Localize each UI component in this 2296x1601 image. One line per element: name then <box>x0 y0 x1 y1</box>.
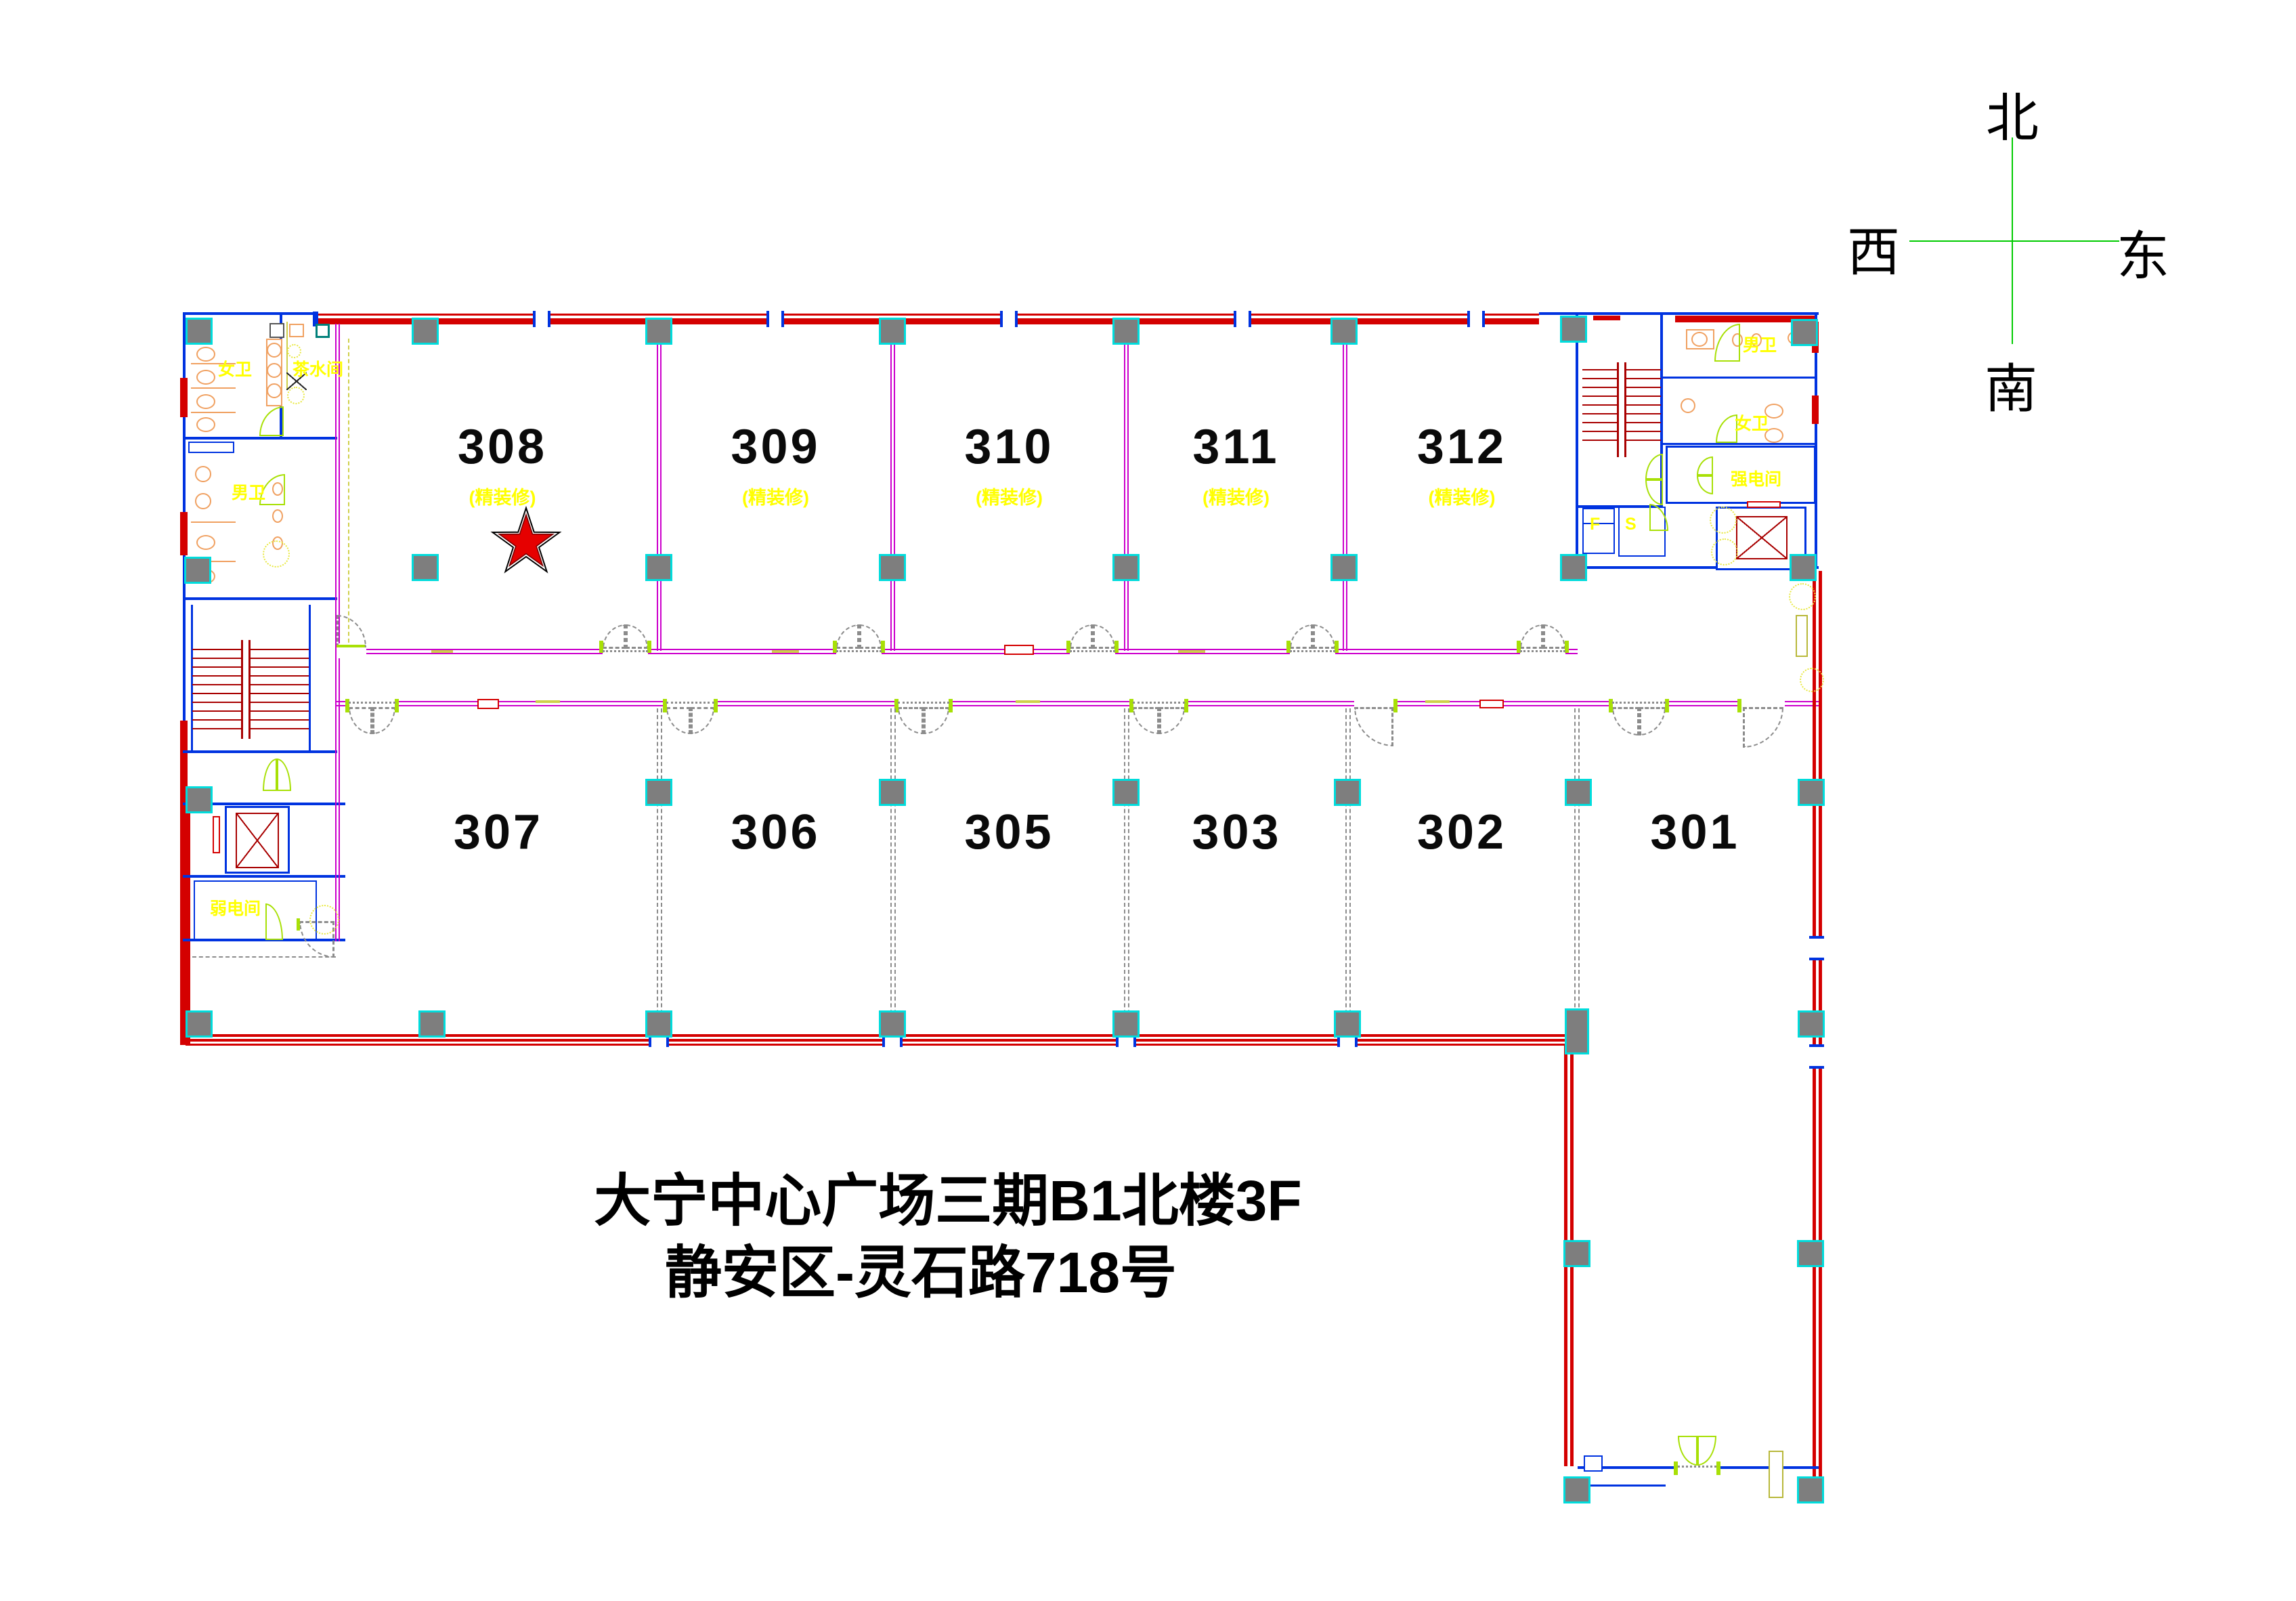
wall-segment <box>318 314 1539 316</box>
window-left-wall <box>180 512 188 555</box>
toilet-icon <box>196 535 215 550</box>
stall-divider <box>191 412 236 413</box>
stall-divider <box>191 387 236 389</box>
room-number: 306 <box>661 805 890 860</box>
compass-north: 北 <box>1986 76 2039 152</box>
sink-icon <box>1681 398 1695 413</box>
column <box>1330 554 1358 581</box>
room-308[interactable]: 308 (精装修) <box>348 324 657 651</box>
wall-segment <box>1346 324 1347 651</box>
room-number: 305 <box>894 805 1124 860</box>
door-jamb <box>297 918 300 931</box>
column <box>1334 1010 1361 1038</box>
column <box>1791 319 1818 346</box>
wall-segment <box>1539 312 1819 315</box>
plant-icon <box>263 540 290 568</box>
shaft-detail <box>1747 501 1781 508</box>
stall-divider <box>191 521 236 523</box>
column <box>418 1010 446 1038</box>
column <box>186 1010 213 1038</box>
wall-segment <box>1578 1485 1666 1487</box>
wall-segment <box>183 437 337 440</box>
dispenser-icon <box>269 323 284 338</box>
column <box>412 554 439 581</box>
wall-segment <box>183 875 345 878</box>
column <box>1565 779 1592 806</box>
shaft-detail <box>213 816 220 853</box>
room-312[interactable]: 312 (精装修) <box>1348 324 1576 651</box>
sink-icon <box>267 363 282 378</box>
stairs <box>192 649 309 730</box>
wall-segment <box>1576 312 1578 569</box>
partition-dashed <box>1345 708 1347 1034</box>
door-arc <box>1714 324 1740 362</box>
column <box>186 318 213 345</box>
entry-detail <box>1584 1455 1603 1472</box>
wall-segment <box>180 809 190 1045</box>
room-note: (精装修) <box>1128 483 1344 509</box>
label-f: F <box>1590 515 1600 534</box>
room-number: 312 <box>1348 419 1576 475</box>
stair-rail <box>1617 362 1626 457</box>
toilet-icon <box>196 417 215 432</box>
wall-segment <box>183 750 337 753</box>
column <box>1790 554 1817 581</box>
wall-segment <box>890 324 892 651</box>
entrance-door-arc[interactable] <box>1697 1436 1716 1466</box>
shaft-detail <box>1769 1451 1783 1498</box>
wall-segment <box>183 597 337 600</box>
room-301[interactable]: 301 <box>1578 706 1812 1034</box>
counter <box>289 324 304 337</box>
sink-icon <box>267 343 282 358</box>
wall-segment <box>336 653 1578 654</box>
window-break <box>1809 936 1824 960</box>
room-number: 310 <box>894 419 1124 475</box>
compass-east: 东 <box>2117 214 2169 290</box>
plant-icon <box>309 905 339 935</box>
wall-segment <box>1663 377 1817 379</box>
room-310[interactable]: 310 (精装修) <box>894 324 1124 651</box>
partition-dashed <box>1124 708 1125 1034</box>
room-number: 301 <box>1578 805 1812 860</box>
column <box>1798 779 1825 806</box>
sink-icon <box>316 324 330 338</box>
room-302[interactable]: 302 <box>1349 706 1574 1034</box>
room-number: 303 <box>1128 805 1345 860</box>
wall-segment <box>309 605 311 753</box>
partition-dashed <box>657 708 658 1034</box>
room-309[interactable]: 309 (精装修) <box>661 324 890 651</box>
room-label-low-voltage: 弱电间 <box>210 895 261 920</box>
column <box>184 557 211 584</box>
room-note: (精装修) <box>894 483 1124 509</box>
toilet-icon <box>196 394 215 409</box>
column <box>645 1010 672 1038</box>
column <box>1563 1476 1590 1503</box>
sink-icon <box>1691 332 1708 347</box>
door-threshold <box>1678 1466 1716 1468</box>
wall-mark <box>1016 700 1040 703</box>
toilet-icon <box>196 370 215 385</box>
room-label-male-wc: 男卫 <box>232 479 265 504</box>
room-number: 302 <box>1349 805 1574 860</box>
door-threshold <box>1133 702 1185 704</box>
room-label-female-wc-right: 女卫 <box>1735 410 1769 435</box>
door-arc <box>259 406 284 436</box>
column <box>1797 1476 1824 1503</box>
room-label-male-wc-right: 男卫 <box>1743 332 1777 356</box>
column <box>645 554 672 581</box>
plant-icon <box>1710 507 1737 534</box>
plant-icon <box>1789 583 1816 610</box>
door-arc <box>263 759 277 791</box>
room-label-tea-room: 茶水间 <box>293 356 343 381</box>
column <box>1112 318 1140 345</box>
plan-title-line1: 大宁中心广场三期B1北楼3F <box>271 1155 1625 1237</box>
wall-mark <box>1425 700 1450 703</box>
room-number: 308 <box>348 419 657 475</box>
column <box>1565 1008 1589 1054</box>
column <box>879 779 906 806</box>
plant-icon <box>287 387 305 404</box>
room-number: 309 <box>661 419 890 475</box>
room-307[interactable]: 307 <box>340 706 657 1034</box>
room-note: (精装修) <box>661 483 890 509</box>
column <box>1112 554 1140 581</box>
wall-mark <box>536 700 560 703</box>
partition-dashed <box>890 708 892 1034</box>
door-jamb <box>1716 1461 1720 1475</box>
column <box>645 779 672 806</box>
label-s: S <box>1625 515 1637 534</box>
column <box>1560 554 1587 581</box>
door-arc <box>277 759 291 791</box>
star-marker[interactable] <box>489 506 563 578</box>
column <box>879 318 906 345</box>
floor-plan: 弱电间 女卫 茶水间 男卫 <box>0 0 2296 1601</box>
door-threshold <box>666 702 714 704</box>
wall-segment <box>1593 316 1620 320</box>
window-break <box>1809 1044 1824 1069</box>
plant-icon <box>1800 668 1824 692</box>
compass-west: 西 <box>1847 210 1900 286</box>
room-number: 307 <box>340 805 657 860</box>
room-number: 311 <box>1128 419 1344 475</box>
column <box>1334 779 1361 806</box>
column <box>1797 1240 1824 1267</box>
wall-segment <box>1663 443 1817 445</box>
room-303[interactable]: 303 <box>1128 706 1345 1034</box>
door-threshold <box>349 702 395 704</box>
column <box>1798 1010 1825 1038</box>
room-306[interactable]: 306 <box>661 706 890 1034</box>
column <box>879 1010 906 1038</box>
elevator-icon <box>236 813 279 868</box>
sink-icon <box>267 383 282 398</box>
wall-segment <box>192 956 336 958</box>
sink-icon <box>195 466 211 482</box>
room-311[interactable]: 311 (精装修) <box>1128 324 1344 651</box>
column <box>879 554 906 581</box>
room-305[interactable]: 305 <box>894 706 1124 1034</box>
toilet-icon <box>196 347 215 362</box>
door-threshold <box>1612 702 1666 704</box>
room-note: (精装修) <box>1348 483 1576 509</box>
wall-segment <box>183 312 318 315</box>
compass-south: 南 <box>1985 347 2037 423</box>
counter <box>188 442 234 453</box>
plan-title-line2: 静安区-灵石路718号 <box>244 1227 1598 1309</box>
stair-rail <box>241 640 251 739</box>
door-jamb <box>1674 1461 1678 1475</box>
wall-segment <box>335 706 337 941</box>
column <box>1560 316 1587 343</box>
plant-icon <box>1711 538 1738 565</box>
column <box>1112 779 1140 806</box>
column <box>412 318 439 345</box>
door-arc <box>1645 454 1663 479</box>
compass-line-ns <box>2012 137 2013 344</box>
wall-segment <box>1124 324 1125 651</box>
window-left-wall <box>180 378 188 417</box>
urinal-icon <box>272 509 283 523</box>
door-threshold <box>898 702 949 704</box>
door-arc <box>1645 479 1663 505</box>
wall-segment <box>657 324 658 651</box>
column <box>1330 318 1358 345</box>
entrance-door-arc[interactable] <box>1678 1436 1697 1466</box>
room-label-female-wc: 女卫 <box>218 356 252 381</box>
room-label-power-room: 强电间 <box>1731 466 1781 490</box>
window-right-wall <box>1812 396 1819 424</box>
compass-line-ew <box>1909 240 2119 242</box>
column <box>186 786 213 813</box>
partition-dashed <box>1574 708 1576 1034</box>
column <box>1112 1010 1140 1038</box>
elevator-icon <box>1736 516 1788 559</box>
column <box>645 318 672 345</box>
wall-segment <box>1716 1466 1819 1469</box>
sink-icon <box>195 493 211 509</box>
shaft-detail <box>1796 615 1808 657</box>
